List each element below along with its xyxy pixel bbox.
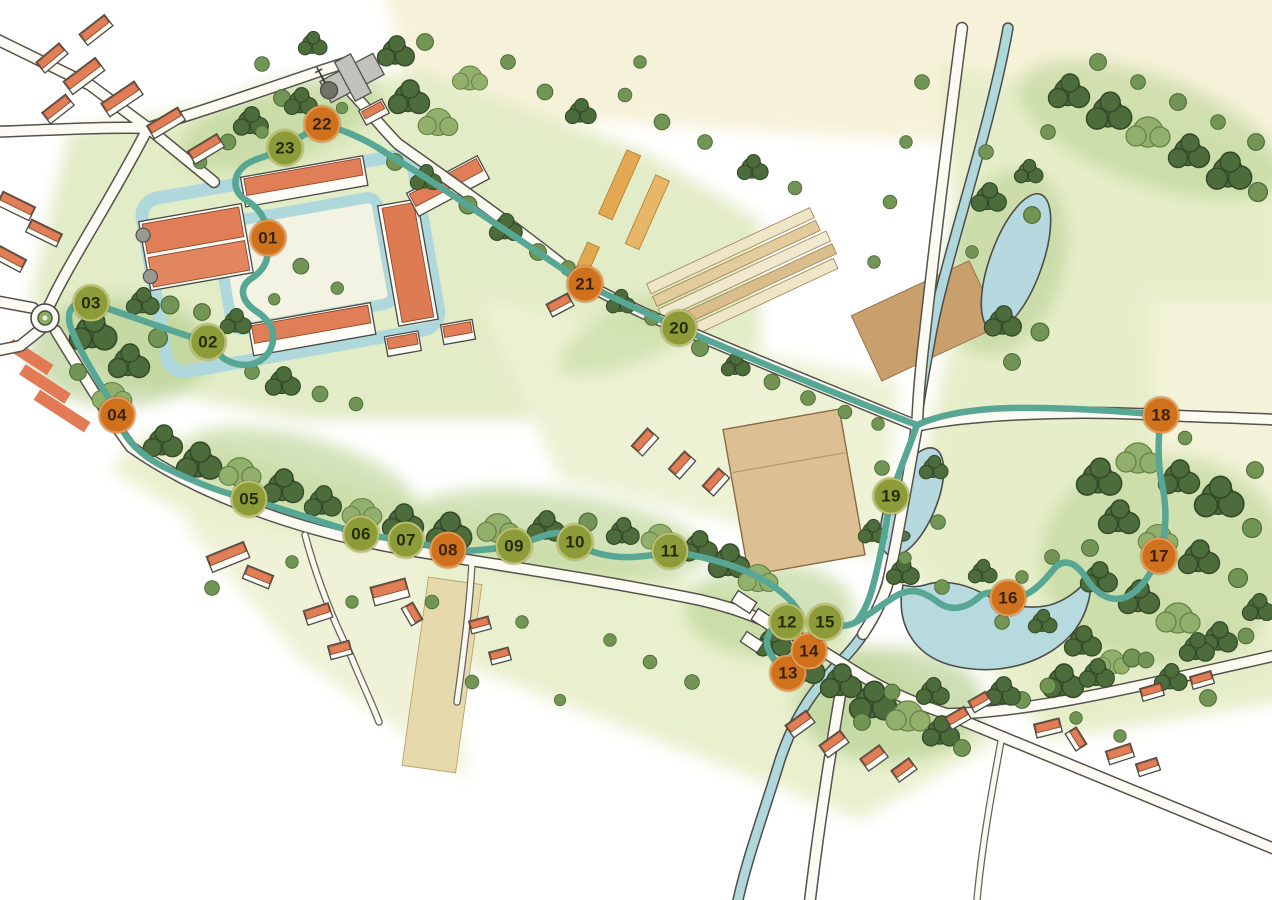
trail-marker-01[interactable]: 01 [250, 220, 287, 257]
trail-marker-08[interactable]: 08 [430, 532, 467, 569]
trail-marker-05[interactable]: 05 [231, 481, 268, 518]
trail-marker-09[interactable]: 09 [496, 528, 533, 565]
trail-marker-03[interactable]: 03 [73, 285, 110, 322]
trail-marker-11[interactable]: 11 [652, 533, 689, 570]
trail-marker-17[interactable]: 17 [1141, 538, 1178, 575]
trail-marker-22[interactable]: 22 [304, 106, 341, 143]
trail-marker-10[interactable]: 10 [557, 524, 594, 561]
trail-marker-15[interactable]: 15 [807, 604, 844, 641]
trail-marker-20[interactable]: 20 [661, 310, 698, 347]
trail-marker-16[interactable]: 16 [990, 580, 1027, 617]
trail-marker-18[interactable]: 18 [1143, 397, 1180, 434]
trail-marker-21[interactable]: 21 [567, 266, 604, 303]
trail-marker-04[interactable]: 04 [99, 397, 136, 434]
trail-marker-07[interactable]: 07 [388, 522, 425, 559]
trail-marker-02[interactable]: 02 [190, 324, 227, 361]
trail-marker-23[interactable]: 23 [267, 130, 304, 167]
trail-marker-19[interactable]: 19 [873, 478, 910, 515]
map-illustration [0, 0, 1272, 900]
trail-map: 0102030405060708091011121314151617181920… [0, 0, 1272, 900]
roundabout [31, 304, 59, 332]
trail-marker-06[interactable]: 06 [343, 516, 380, 553]
